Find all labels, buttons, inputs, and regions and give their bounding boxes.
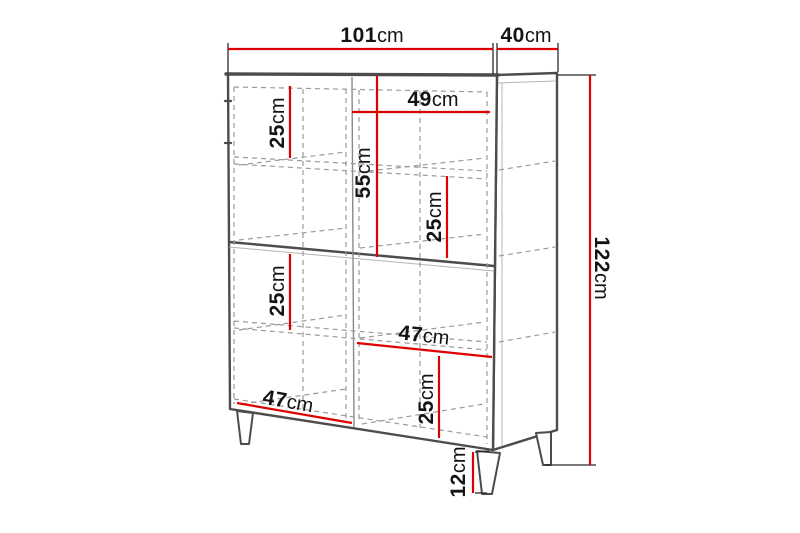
- dim-value: 25: [266, 124, 289, 148]
- dim-label-top-depth: 40cm: [500, 24, 551, 48]
- dim-label-leg-height: 12cm: [447, 446, 471, 497]
- dim-unit: cm: [416, 373, 438, 400]
- dim-unit: cm: [432, 89, 459, 111]
- top-edge: [226, 74, 498, 75]
- dim-label-upper-right-shelf: 25cm: [423, 191, 447, 242]
- dim-label-total-height: 122cm: [589, 236, 613, 299]
- dim-unit: cm: [267, 265, 289, 292]
- dim-value: 25: [423, 218, 446, 242]
- dim-value: 25: [266, 292, 289, 316]
- dim-unit: cm: [448, 446, 470, 473]
- dim-value: 12: [447, 473, 470, 497]
- dim-label-lower-left-shelf: 25cm: [266, 265, 290, 316]
- dim-unit: cm: [424, 191, 446, 218]
- dim-label-right-door-width: 49cm: [407, 88, 458, 112]
- dim-label-upper-left-shelf: 25cm: [266, 97, 290, 148]
- dim-unit: cm: [377, 25, 404, 47]
- dim-unit: cm: [590, 273, 612, 300]
- dim-value: 40: [500, 24, 524, 47]
- dim-value: 55: [352, 174, 375, 198]
- dim-value: 49: [407, 88, 431, 111]
- dim-value: 25: [415, 400, 438, 424]
- dim-unit: cm: [285, 391, 315, 417]
- dim-unit: cm: [353, 147, 375, 174]
- cabinet-dimension-diagram: 101cm 40cm 122cm 25cm 49cm 55cm 25cm 25c…: [0, 0, 800, 533]
- side-panel: [493, 73, 557, 450]
- cabinet-line-art: [0, 0, 800, 533]
- dim-value: 122: [590, 236, 613, 273]
- leg-back-right: [536, 432, 551, 465]
- leg-front-left: [237, 411, 253, 444]
- leg-front-right: [477, 451, 500, 494]
- dim-unit: cm: [525, 25, 552, 47]
- dim-value: 101: [340, 24, 377, 47]
- dim-unit: cm: [267, 97, 289, 124]
- dim-label-top-width: 101cm: [340, 24, 403, 48]
- dim-label-lower-right-shelf: 25cm: [415, 373, 439, 424]
- dim-label-upper-section-height: 55cm: [352, 147, 376, 198]
- dim-value: 47: [397, 321, 424, 346]
- dim-unit: cm: [422, 325, 451, 350]
